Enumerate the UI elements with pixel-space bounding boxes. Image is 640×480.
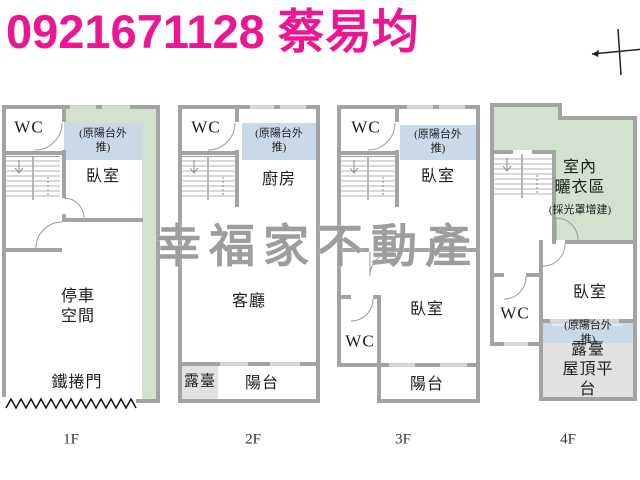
room-label-bedroom-top-3f: 臥室: [421, 167, 455, 187]
room-label-bedroom-4f: 臥室: [573, 283, 607, 303]
floorplan-1f: WC (原陽台外推) 臥室 停車 空間 鐵捲門: [2, 105, 162, 417]
room-label-bedroom-1f: 臥室: [86, 167, 120, 187]
room-label-balcony-2f: 陽台: [245, 374, 279, 394]
floor-tag-2f: 2F: [245, 432, 261, 449]
floor-tag-4f: 4F: [560, 432, 576, 449]
room-label-roof-terrace: 露臺 屋頂平台: [557, 340, 619, 400]
agent-name: 蔡易均: [278, 5, 419, 58]
room-label-wc-4f: WC: [500, 302, 529, 323]
room-label-roller-door: 鐵捲門: [51, 373, 102, 393]
room-label-living: 客廳: [232, 292, 266, 312]
room-label-bedroom-3f: 臥室: [410, 300, 444, 320]
floorplan-page: { "header": { "phone": "0921671128", "ag…: [0, 0, 640, 480]
room-label-parking: 停車 空間: [61, 287, 95, 327]
room-label-balcony-3f: 陽台: [410, 375, 444, 395]
room-label-terrace-2f: 露臺: [184, 373, 216, 392]
watermark: 幸福家不動產: [155, 210, 479, 276]
floorplan-4f: 室內 曬衣區 (採光罩增建) WC 臥室 (原陽台外推) 露臺 屋頂平台: [490, 103, 640, 415]
room-label-balcony-pushed-2f: (原陽台外推): [250, 127, 309, 155]
room-label-kitchen: 廚房: [262, 170, 296, 190]
room-label-wc-2f: WC: [191, 116, 220, 137]
roller-shutter-zigzag: [6, 399, 136, 408]
room-label-laundry-note: (採光罩增建): [549, 204, 611, 218]
room-label-balcony-pushed-3f: (原陽台外推): [409, 128, 468, 156]
phone-number: 0921671128: [6, 5, 265, 58]
floor-tag-3f: 3F: [395, 432, 411, 449]
room-label-balcony-pushed-1f: (原陽台外推): [74, 127, 133, 155]
room-label-wc-top-3f: WC: [351, 116, 380, 137]
room-label-laundry: 室內 曬衣區: [554, 158, 605, 198]
room-label-wc-1f: WC: [14, 116, 43, 137]
floor-tag-1f: 1F: [63, 432, 79, 449]
contact-header: 0921671128 蔡易均: [6, 2, 640, 66]
room-label-wc-lower-3f: WC: [345, 330, 374, 351]
